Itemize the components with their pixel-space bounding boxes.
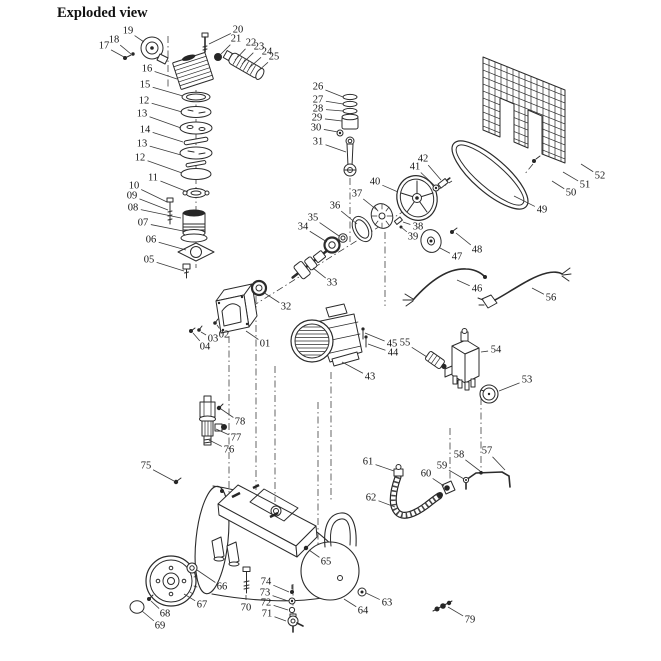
part-label-59: 59 bbox=[437, 461, 448, 472]
leader-line-12 bbox=[152, 103, 182, 112]
part-label-36: 36 bbox=[330, 201, 341, 212]
part-label-37: 37 bbox=[352, 189, 363, 200]
leader-line-31 bbox=[326, 145, 346, 152]
leader-line-40 bbox=[382, 185, 398, 192]
leader-line-16 bbox=[155, 72, 177, 79]
leader-line-18 bbox=[120, 45, 131, 54]
part-label-02: 02 bbox=[219, 330, 230, 341]
power-cord bbox=[478, 268, 571, 308]
electric-motor bbox=[291, 304, 362, 366]
part-label-77: 77 bbox=[231, 433, 242, 444]
part-label-60: 60 bbox=[421, 469, 432, 480]
leader-line-59 bbox=[449, 470, 464, 479]
part-label-15: 15 bbox=[140, 80, 151, 91]
leader-line-33 bbox=[313, 268, 326, 278]
bearing-rear bbox=[325, 238, 340, 253]
leader-line-44 bbox=[368, 344, 385, 350]
air-filter bbox=[141, 37, 168, 64]
part-label-04: 04 bbox=[200, 342, 211, 353]
part-label-13: 13 bbox=[137, 109, 148, 120]
part-label-35: 35 bbox=[308, 213, 319, 224]
part-label-50: 50 bbox=[566, 188, 577, 199]
part-label-74: 74 bbox=[261, 577, 272, 588]
part-label-17: 17 bbox=[99, 41, 110, 52]
part-label-26: 26 bbox=[313, 82, 324, 93]
part-label-72: 72 bbox=[261, 598, 272, 609]
part-label-07: 07 bbox=[138, 218, 149, 229]
leader-line-53 bbox=[499, 383, 520, 391]
part-label-56: 56 bbox=[546, 293, 557, 304]
fan-disc bbox=[368, 201, 396, 232]
cylinder-gasket bbox=[178, 243, 214, 261]
part-label-18: 18 bbox=[109, 35, 120, 46]
leader-line-20 bbox=[209, 33, 231, 44]
part-label-67: 67 bbox=[197, 600, 208, 611]
leader-line-63 bbox=[366, 593, 380, 600]
discharge-pipe bbox=[442, 471, 510, 494]
part-label-40: 40 bbox=[370, 177, 381, 188]
part-label-69: 69 bbox=[155, 621, 166, 632]
leader-line-64 bbox=[344, 599, 356, 607]
part-label-25: 25 bbox=[269, 52, 280, 63]
leader-line-75 bbox=[153, 470, 174, 481]
leader-line-06 bbox=[159, 242, 186, 250]
intake-fitting bbox=[222, 49, 265, 81]
part-label-61: 61 bbox=[363, 457, 374, 468]
part-label-47: 47 bbox=[452, 252, 463, 263]
platform-bolt bbox=[243, 567, 250, 593]
part-label-48: 48 bbox=[472, 245, 483, 256]
part-label-12: 12 bbox=[135, 153, 146, 164]
flywheel-washer-bolt bbox=[433, 176, 451, 191]
part-label-63: 63 bbox=[382, 598, 393, 609]
leader-line-15 bbox=[153, 87, 183, 96]
part-label-14: 14 bbox=[140, 125, 151, 136]
leader-line-04 bbox=[193, 333, 200, 341]
part-label-01: 01 bbox=[260, 339, 271, 350]
leader-line-07 bbox=[151, 225, 183, 231]
part-label-42: 42 bbox=[418, 154, 429, 165]
part-label-11: 11 bbox=[148, 173, 158, 184]
crankcase-fitting bbox=[183, 264, 190, 278]
part-label-79: 79 bbox=[465, 615, 476, 626]
part-label-68: 68 bbox=[160, 609, 171, 620]
leader-line-61 bbox=[376, 465, 394, 471]
part-label-43: 43 bbox=[365, 372, 376, 383]
leader-line-43 bbox=[342, 362, 363, 373]
shaft-nut bbox=[339, 234, 347, 242]
part-label-54: 54 bbox=[491, 345, 502, 356]
part-label-53: 53 bbox=[522, 375, 533, 386]
leader-line-17 bbox=[111, 50, 124, 57]
part-label-46: 46 bbox=[472, 284, 483, 295]
leader-line-42 bbox=[428, 165, 441, 180]
part-label-33: 33 bbox=[327, 278, 338, 289]
part-label-66: 66 bbox=[217, 582, 228, 593]
part-label-32: 32 bbox=[281, 302, 292, 313]
part-label-10: 10 bbox=[129, 181, 140, 192]
part-label-52: 52 bbox=[595, 171, 606, 182]
part-label-51: 51 bbox=[580, 180, 591, 191]
leader-line-27 bbox=[326, 101, 343, 104]
leader-line-39 bbox=[401, 227, 407, 232]
pressure-gauge bbox=[480, 385, 498, 403]
part-label-78: 78 bbox=[235, 417, 246, 428]
part-label-13: 13 bbox=[137, 139, 148, 150]
leader-line-13 bbox=[150, 146, 181, 155]
pressure-switch bbox=[445, 329, 479, 391]
part-label-39: 39 bbox=[408, 232, 419, 243]
part-label-31: 31 bbox=[313, 137, 324, 148]
leader-line-13 bbox=[150, 117, 181, 128]
leader-line-30 bbox=[324, 129, 338, 132]
part-label-45: 45 bbox=[387, 339, 398, 350]
leader-line-01 bbox=[246, 331, 258, 339]
part-label-30: 30 bbox=[311, 123, 322, 134]
exploded-view-diagram: 0102030405060708091011121314131215161718… bbox=[0, 0, 661, 661]
leader-line-11 bbox=[160, 181, 188, 192]
leader-line-52 bbox=[581, 164, 593, 172]
stack-bolt bbox=[167, 198, 173, 224]
tank-bolt bbox=[174, 478, 181, 484]
leader-line-71 bbox=[275, 617, 286, 621]
leader-line-05 bbox=[157, 262, 184, 271]
leader-line-79 bbox=[448, 607, 463, 616]
leader-line-34 bbox=[310, 231, 327, 242]
part-label-19: 19 bbox=[123, 26, 134, 37]
drain-valve bbox=[288, 585, 303, 632]
part-label-06: 06 bbox=[146, 235, 157, 246]
belt-guard bbox=[478, 40, 570, 170]
leader-line-03 bbox=[201, 332, 206, 335]
leader-line-74 bbox=[273, 585, 289, 592]
part-label-64: 64 bbox=[358, 606, 369, 617]
leader-line-78 bbox=[221, 409, 233, 417]
leader-line-26 bbox=[325, 90, 343, 97]
part-label-57: 57 bbox=[482, 446, 493, 457]
flex-hose bbox=[393, 465, 443, 516]
part-label-16: 16 bbox=[142, 64, 153, 75]
leader-line-60 bbox=[433, 478, 444, 486]
part-label-62: 62 bbox=[366, 493, 377, 504]
part-label-55: 55 bbox=[400, 338, 411, 349]
leader-line-37 bbox=[363, 199, 377, 210]
leader-line-28 bbox=[326, 110, 343, 111]
leader-line-02 bbox=[217, 325, 219, 328]
leader-line-50 bbox=[552, 181, 564, 189]
part-label-08: 08 bbox=[128, 203, 139, 214]
leader-line-55 bbox=[412, 347, 427, 357]
part-label-75: 75 bbox=[141, 461, 152, 472]
crankcase bbox=[216, 284, 257, 333]
leader-line-58 bbox=[465, 460, 480, 471]
part-label-05: 05 bbox=[144, 255, 155, 266]
cylinder-head bbox=[172, 50, 214, 90]
leader-line-35 bbox=[320, 223, 339, 236]
part-label-09: 09 bbox=[127, 191, 138, 202]
leader-line-54 bbox=[481, 351, 488, 352]
leader-line-56 bbox=[532, 288, 544, 294]
leader-line-38 bbox=[403, 222, 410, 224]
part-label-71: 71 bbox=[262, 609, 273, 620]
leader-line-51 bbox=[563, 172, 578, 181]
leader-line-14 bbox=[153, 132, 183, 142]
safety-valve bbox=[200, 396, 228, 445]
part-label-70: 70 bbox=[241, 603, 252, 614]
leader-line-57 bbox=[493, 457, 505, 470]
wheel-washer bbox=[187, 563, 197, 573]
leader-line-29 bbox=[325, 119, 342, 121]
part-label-65: 65 bbox=[321, 557, 332, 568]
leader-line-72 bbox=[274, 605, 288, 610]
part-label-21: 21 bbox=[231, 34, 242, 45]
leader-line-46 bbox=[457, 280, 470, 286]
part-label-73: 73 bbox=[260, 588, 271, 599]
connecting-rod bbox=[344, 137, 356, 176]
leader-line-12 bbox=[148, 161, 182, 173]
part-label-58: 58 bbox=[454, 450, 465, 461]
part-label-49: 49 bbox=[537, 205, 548, 216]
outlet-fitting bbox=[433, 601, 452, 612]
piston-rings bbox=[337, 94, 358, 136]
leader-line-32 bbox=[263, 292, 279, 303]
leader-line-10 bbox=[141, 189, 167, 202]
piston-cylinder bbox=[181, 210, 207, 243]
leader-line-48 bbox=[456, 233, 471, 245]
crankcase-bolts bbox=[189, 319, 218, 333]
leader-line-19 bbox=[135, 36, 144, 42]
leader-line-47 bbox=[440, 248, 450, 253]
leader-line-45 bbox=[365, 333, 385, 341]
leader-line-69 bbox=[142, 611, 154, 621]
motor-bolts bbox=[361, 327, 367, 347]
tank-washer bbox=[358, 588, 366, 596]
filter-screws bbox=[123, 52, 135, 60]
part-label-12: 12 bbox=[139, 96, 150, 107]
exploded-view-page: Exploded view bbox=[0, 0, 661, 661]
part-label-76: 76 bbox=[224, 445, 235, 456]
